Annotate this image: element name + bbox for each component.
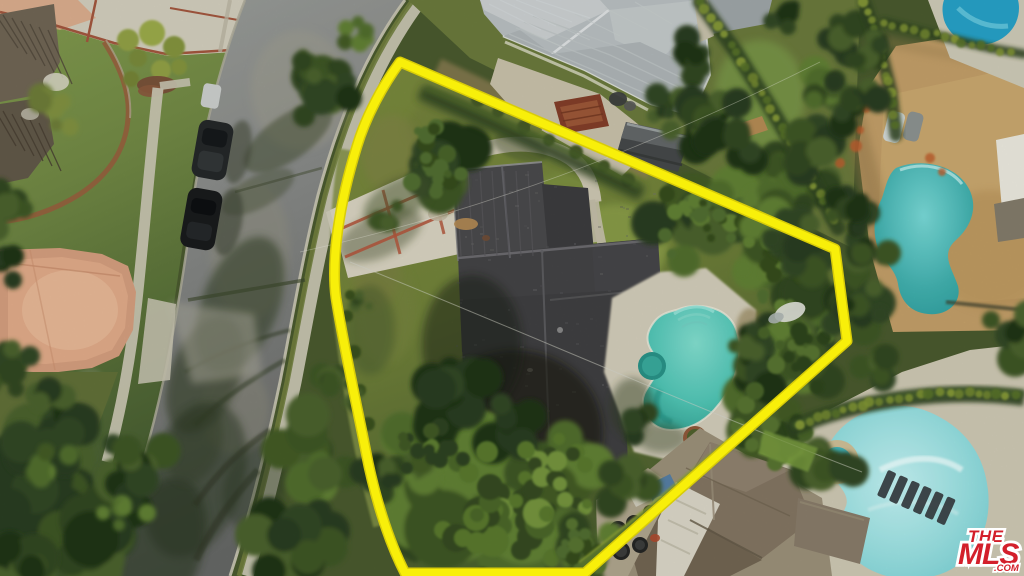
svg-text:.COM: .COM (994, 563, 1020, 574)
